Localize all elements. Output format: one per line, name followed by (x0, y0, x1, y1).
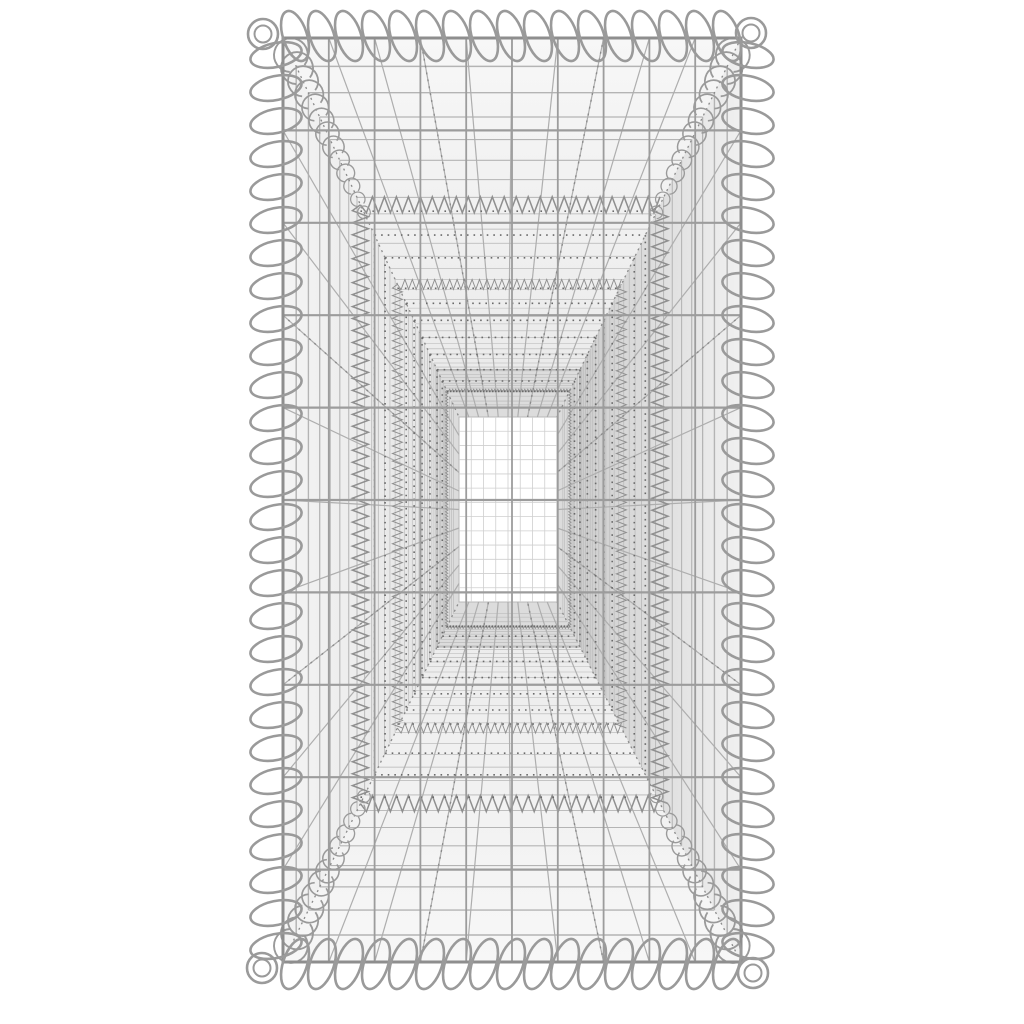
product-photo (0, 0, 1024, 1024)
page (0, 0, 1024, 1024)
gabion-basket-illustration (0, 0, 1024, 1024)
